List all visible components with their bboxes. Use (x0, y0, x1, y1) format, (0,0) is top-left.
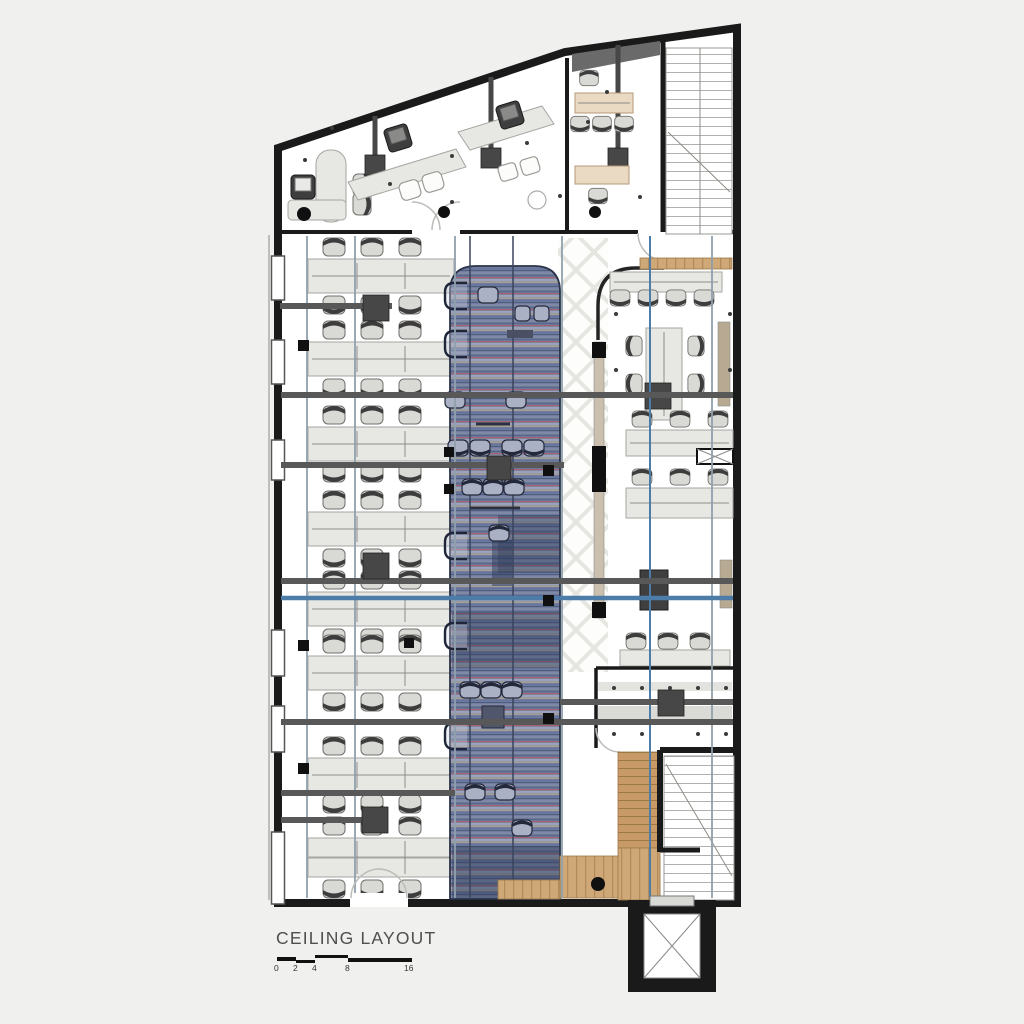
column (363, 295, 389, 321)
drawing-sheet: CEILING LAYOUT 0 2 4 8 16 (0, 0, 1024, 1024)
ceiling-fixture (298, 640, 309, 651)
stairwell-top-right (666, 48, 732, 234)
central-lounge-carpet (445, 236, 560, 899)
waste-bin (591, 877, 605, 891)
elevator-door (650, 896, 694, 906)
ceiling-fixture (298, 340, 309, 351)
column (658, 690, 684, 716)
armchair (515, 306, 530, 321)
armchair (534, 306, 549, 321)
ceiling-fixture (298, 763, 309, 774)
waste-bin (297, 207, 311, 221)
executive-chair (291, 175, 315, 199)
ceiling-fixture (444, 484, 454, 494)
wood-staircase (618, 752, 660, 848)
area-rug (452, 612, 560, 668)
column-cabinet (640, 570, 668, 610)
column (487, 456, 511, 480)
column (608, 148, 628, 168)
meeting-table (575, 166, 629, 184)
corridor (558, 238, 608, 672)
column (363, 553, 389, 579)
ceiling-plan-svg (0, 0, 1024, 1024)
l-desk-return (288, 200, 346, 220)
column (362, 807, 388, 833)
desk-bank (620, 650, 730, 666)
ceiling-fixture (543, 465, 554, 476)
waste-bin (589, 206, 601, 218)
side-table (528, 191, 546, 209)
shaft-duct (697, 449, 733, 464)
ceiling-fixture (543, 595, 554, 606)
wood-floor (498, 880, 560, 899)
credenza (640, 258, 732, 269)
elevator-shaft (628, 896, 716, 992)
ceiling-fixture (444, 447, 454, 457)
ceiling-fixture (404, 638, 414, 648)
stairwell-bottom-right (660, 750, 736, 900)
coffee-table (507, 330, 533, 338)
waste-bin (438, 206, 450, 218)
ceiling-fixture (543, 713, 554, 724)
column (481, 148, 501, 168)
stair-landing (618, 848, 660, 900)
armchair (478, 287, 498, 303)
